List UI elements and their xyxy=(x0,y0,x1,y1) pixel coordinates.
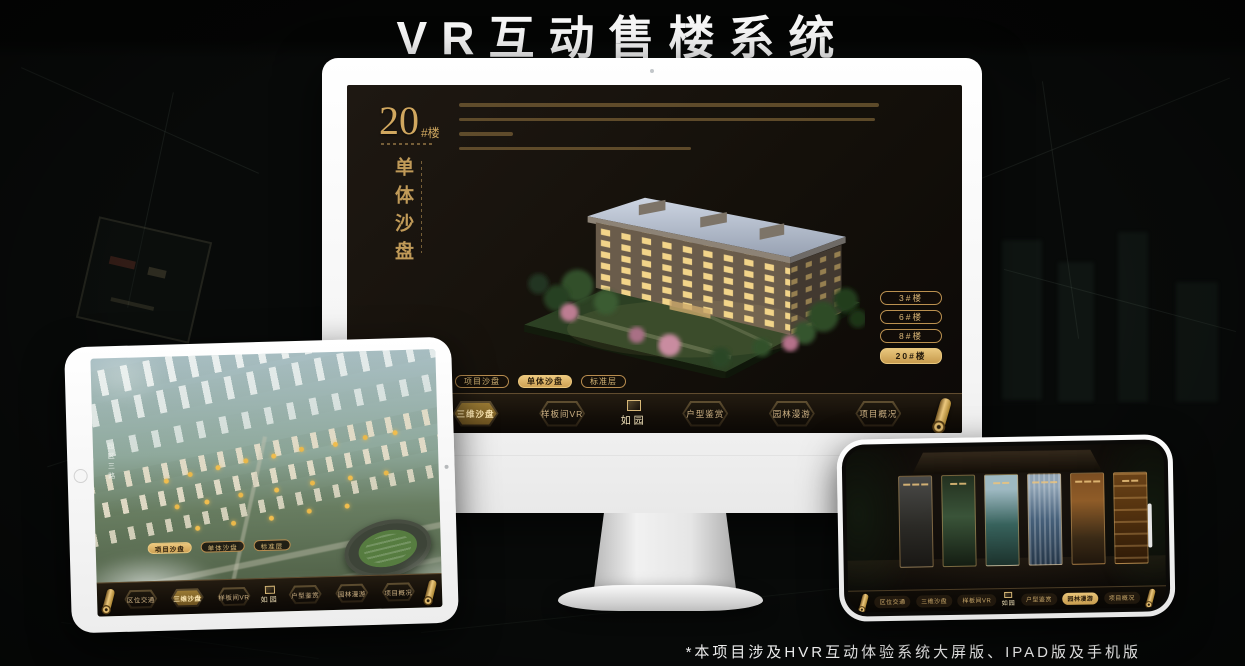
gallery-card[interactable] xyxy=(1070,472,1106,565)
scroll-icon[interactable] xyxy=(102,588,115,612)
webcam-icon xyxy=(650,69,654,73)
brand-logo-text: 如园 xyxy=(621,412,647,427)
marketing-composite: VR互动售楼系统 20 #楼 单体沙盘 xyxy=(0,0,1245,666)
tab-single-sandtable[interactable]: 单体沙盘 xyxy=(201,540,245,552)
nav-item-3d-sandtable[interactable]: 三维沙盘 xyxy=(167,586,208,609)
description-line xyxy=(459,147,691,151)
scroll-icon[interactable] xyxy=(1145,588,1155,607)
brand-logo: 如园 xyxy=(621,400,647,427)
description-block xyxy=(459,103,879,150)
scene-gallery xyxy=(898,472,1149,568)
nav-item-project-overview[interactable]: 项目概况 xyxy=(1104,591,1140,604)
monitor-stand-base xyxy=(558,585,763,611)
building-number-badges xyxy=(164,479,169,484)
monitor-stand-neck xyxy=(594,513,736,589)
nav-item-label: 园林漫游 xyxy=(773,408,811,420)
building-number-suffix: #楼 xyxy=(421,124,440,141)
nav-item-label: 项目概况 xyxy=(859,408,897,420)
view-tabs: 项目沙盘 单体沙盘 标准层 xyxy=(455,375,626,388)
nav-item-label: 三维沙盘 xyxy=(457,408,495,420)
nav-item-label: 户型鉴赏 xyxy=(686,408,724,420)
nav-item-unit-appreciation[interactable]: 户型鉴赏 xyxy=(1021,593,1057,606)
footnote: *本项目涉及HVR互动体验系统大屏版、IPAD版及手机版 xyxy=(686,641,1141,662)
nav-item-showroom-vr[interactable]: 样板间VR xyxy=(957,594,996,607)
nav-item-label: 样板间VR xyxy=(218,591,249,602)
tablet-camera-icon xyxy=(445,465,449,469)
gallery-card[interactable] xyxy=(1027,473,1063,566)
tablet-device: 园区三路 项目沙盘 单体沙盘 标准层 区位交通 三维沙盘 样板间VR xyxy=(64,337,459,634)
phone-device: 区位交通 三维沙盘 样板间VR 如园 户型鉴赏 园林漫游 项目概况 xyxy=(836,434,1175,622)
phone-screen: 区位交通 三维沙盘 样板间VR 如园 户型鉴赏 园林漫游 项目概况 xyxy=(846,443,1167,613)
home-indicator[interactable] xyxy=(1148,503,1153,547)
brand-logo-text: 如园 xyxy=(1002,598,1016,607)
tab-single-sandtable[interactable]: 单体沙盘 xyxy=(518,375,572,388)
tab-project-sandtable[interactable]: 项目沙盘 xyxy=(455,375,509,388)
scroll-icon[interactable] xyxy=(933,397,952,431)
scroll-icon[interactable] xyxy=(424,579,437,603)
nav-item-label: 样板间VR xyxy=(541,408,583,420)
nav-item-project-overview[interactable]: 项目概况 xyxy=(850,399,906,429)
tab-standard-floor[interactable]: 标准层 xyxy=(254,539,291,551)
gallery-card[interactable] xyxy=(1113,472,1149,565)
description-line xyxy=(459,118,875,122)
floor-button-column: 3#楼 6#楼 8#楼 20#楼 xyxy=(880,291,942,369)
floor-button-6[interactable]: 6#楼 xyxy=(880,310,942,324)
nav-item-unit-appreciation[interactable]: 户型鉴赏 xyxy=(677,399,733,429)
floor-button-20[interactable]: 20#楼 xyxy=(880,348,942,364)
description-line xyxy=(459,132,513,136)
nav-item-label: 项目概况 xyxy=(384,586,412,597)
nav-item-label: 户型鉴赏 xyxy=(291,589,319,600)
floor-button-8[interactable]: 8#楼 xyxy=(880,329,942,343)
building-heading: 20 #楼 xyxy=(379,101,440,141)
scroll-icon[interactable] xyxy=(859,593,869,612)
nav-item-garden-roam[interactable]: 园林漫游 xyxy=(764,399,820,429)
nav-item-unit-appreciation[interactable]: 户型鉴赏 xyxy=(285,583,326,606)
home-button-icon[interactable] xyxy=(73,469,87,483)
nav-item-3d-sandtable[interactable]: 三维沙盘 xyxy=(448,399,504,429)
gallery-card[interactable] xyxy=(898,475,934,568)
building-number: 20 xyxy=(379,101,419,141)
building-render xyxy=(515,163,865,378)
brand-logo: 如园 xyxy=(1001,592,1015,607)
brand-logo: 如园 xyxy=(260,586,279,605)
road-label: 园区三路 xyxy=(105,442,116,482)
interior-lintel xyxy=(912,449,1102,474)
seal-icon xyxy=(264,586,274,594)
tab-standard-floor[interactable]: 标准层 xyxy=(581,375,626,388)
view-tabs: 项目沙盘 单体沙盘 标准层 xyxy=(148,539,291,554)
nav-item-project-overview[interactable]: 项目概况 xyxy=(378,580,419,603)
vertical-ornament xyxy=(421,161,422,253)
description-line xyxy=(459,103,879,107)
nav-item-label: 三维沙盘 xyxy=(173,592,201,603)
heading-ornament xyxy=(381,143,433,145)
tab-project-sandtable[interactable]: 项目沙盘 xyxy=(148,542,192,554)
nav-item-showroom-vr[interactable]: 样板间VR xyxy=(534,399,590,429)
vertical-subtitle: 单体沙盘 xyxy=(389,157,416,269)
nav-item-label: 园林漫游 xyxy=(338,588,366,599)
nav-item-garden-roam[interactable]: 园林漫游 xyxy=(1062,592,1098,605)
nav-item-showroom-vr[interactable]: 样板间VR xyxy=(214,585,255,608)
floor-button-3[interactable]: 3#楼 xyxy=(880,291,942,305)
nav-item-location-traffic[interactable]: 区位交通 xyxy=(120,587,161,610)
gallery-card[interactable] xyxy=(984,474,1020,567)
tablet-screen: 园区三路 项目沙盘 单体沙盘 标准层 区位交通 三维沙盘 样板间VR xyxy=(90,349,442,617)
nav-item-3d-sandtable[interactable]: 三维沙盘 xyxy=(916,594,952,607)
gallery-card[interactable] xyxy=(941,475,977,568)
nav-item-garden-roam[interactable]: 园林漫游 xyxy=(332,581,373,604)
nav-item-location-traffic[interactable]: 区位交通 xyxy=(875,595,911,608)
brand-logo-text: 如园 xyxy=(261,595,279,605)
nav-item-label: 区位交通 xyxy=(127,594,155,605)
seal-icon xyxy=(627,400,641,411)
